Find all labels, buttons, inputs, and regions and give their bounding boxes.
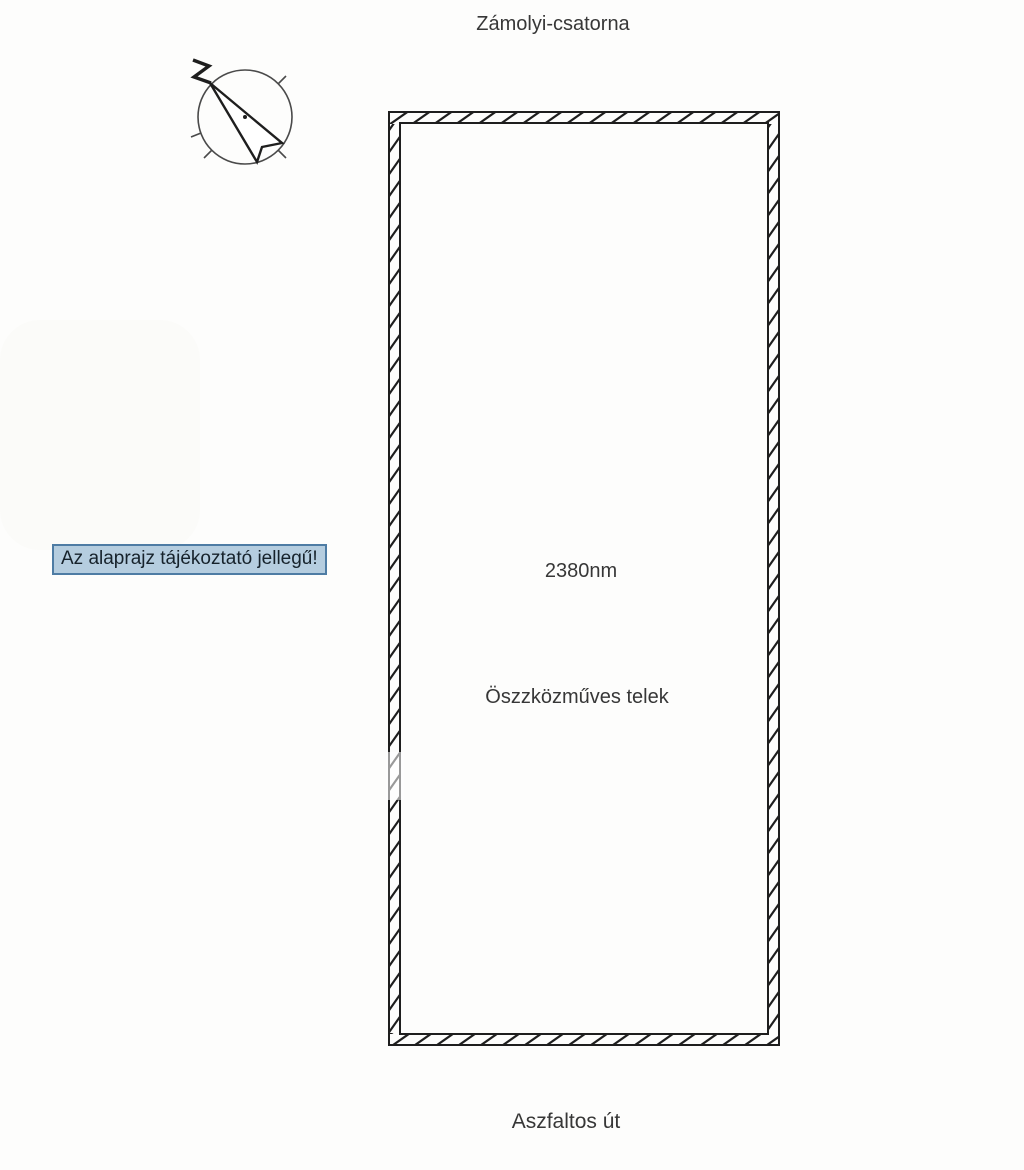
- disclaimer-note: Az alaprajz tájékoztató jellegű!: [52, 544, 327, 575]
- watermark-ghost: [0, 320, 200, 550]
- north-compass-icon: [185, 55, 300, 180]
- canal-label: Zámolyi-csatorna: [476, 13, 629, 36]
- plot-type-label: Öszzközműves telek: [485, 686, 668, 709]
- area-label: 2380nm: [545, 560, 617, 583]
- site-plan-page: Zámolyi-csatorna: [0, 0, 1024, 1170]
- road-label: Aszfaltos út: [512, 1110, 621, 1134]
